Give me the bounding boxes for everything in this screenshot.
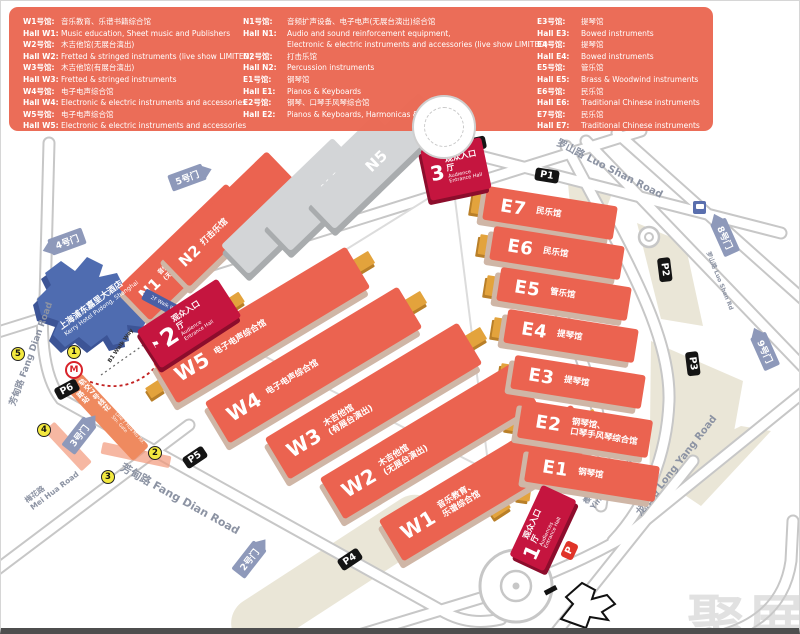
hall-name: 民乐馆 [535,206,562,220]
hall-name: 木吉他馆 (有展台演出) [322,394,376,437]
bus-icon [693,201,706,214]
legend-text: 提琴馆 [581,16,715,28]
legend-text: Traditional Chinese instruments [581,120,715,132]
legend-label: Hall E7: [537,120,581,132]
hall-id: E4 [504,315,558,344]
legend-text: 打击乐馆 [287,51,535,63]
hall-name: 提琴馆 [556,329,583,343]
legend-text: Bowed instruments [581,51,715,63]
stop-2[interactable]: 2 [148,446,162,460]
roundabout-north [412,95,476,159]
legend-label: W2号馆: [23,39,61,51]
legend-text: Fretted & stringed instruments [61,74,241,86]
stop-5[interactable]: 5 [11,347,25,361]
legend-text: 民乐馆 [581,86,715,98]
legend-label: W5号馆: [23,109,61,121]
hall-legend: W1号馆:音乐教育、乐谱书籍综合馆 Hall W1:Music educatio… [9,7,713,131]
legend-label: E2号馆: [243,97,287,109]
stop-4[interactable]: 4 [37,423,51,437]
legend-column-n: N1号馆:音频扩声设备、电子电声(无展台演出)综合馆 Hall N1:Audio… [243,16,535,120]
parking-p2[interactable]: P2 [657,257,673,282]
legend-label: Hall W5: [23,120,61,132]
legend-text: Pianos & Keyboards [287,86,535,98]
hall-name: 管乐馆 [549,287,576,301]
hall-id: E2 [518,408,572,437]
legend-text: 木吉他馆(无展台演出) [61,39,241,51]
legend-text: 木吉他馆(有展台演出) [61,62,241,74]
watermark: 聚展 [687,575,800,634]
legend-text: Fretted & stringed instruments (live sho… [61,51,252,63]
metro-icon[interactable]: M [65,361,83,379]
legend-label [243,39,287,51]
legend-label: Hall W3: [23,74,61,86]
legend-text: 音频扩声设备、电子电声(无展台演出)综合馆 [287,16,535,28]
legend-label: E7号馆: [537,109,581,121]
legend-label: Hall E1: [243,86,287,98]
hall-name: 钢琴馆 [577,467,604,481]
legend-label: W3号馆: [23,62,61,74]
hall-name: 钢琴馆、 口琴手风琴综合馆 [569,417,639,448]
legend-label: Hall E4: [537,51,581,63]
parking-p3[interactable]: P3 [685,351,701,376]
landmark-icon [544,583,615,628]
legend-label: Hall N2: [243,62,287,74]
hall-name: 木吉他馆 (无展台演出) [377,434,431,477]
legend-text: Audio and sound reinforcement equipment, [287,28,535,40]
legend-label: Hall W1: [23,28,61,40]
legend-label: W4号馆: [23,86,61,98]
legend-text: 管乐馆 [581,62,715,74]
hall-name: 提琴馆 [563,375,590,389]
hall-id: E5 [497,273,551,302]
legend-text: 音乐教育、乐谱书籍综合馆 [61,16,241,28]
stop-3[interactable]: 3 [101,470,115,484]
legend-label: Hall E5: [537,74,581,86]
legend-label: N2号馆: [243,51,287,63]
legend-text: Pianos & Keyboards, Harmonicas & Accordi… [287,109,535,121]
roundabout-mini [639,227,659,247]
legend-text: Brass & Woodwind instruments [581,74,715,86]
hall-id: E6 [490,232,544,261]
legend-text: 钢琴馆 [287,74,535,86]
legend-text: Traditional Chinese instruments [581,97,715,109]
legend-column-w: W1号馆:音乐教育、乐谱书籍综合馆 Hall W1:Music educatio… [23,16,241,132]
hall-id: E1 [525,453,579,482]
legend-label: Hall W2: [23,51,61,63]
legend-label: E4号馆: [537,39,581,51]
hall-name: 民乐馆 [542,246,569,260]
hall-id: E7 [483,192,537,221]
hall-id: E3 [511,361,565,390]
legend-label: Hall E6: [537,97,581,109]
legend-text: 电子电声综合馆 [61,109,241,121]
legend-label: E5号馆: [537,62,581,74]
legend-label: Hall W4: [23,97,61,109]
legend-text: Percussion instruments [287,62,535,74]
expo-venue-map: W1号馆:音乐教育、乐谱书籍综合馆 Hall W1:Music educatio… [0,0,800,634]
legend-text: Bowed instruments [581,28,715,40]
legend-label: E1号馆: [243,74,287,86]
stop-1[interactable]: 1 [67,345,81,359]
legend-text: 电子电声综合馆 [61,86,241,98]
legend-label: E3号馆: [537,16,581,28]
legend-label: N1号馆: [243,16,287,28]
legend-label: Hall E3: [537,28,581,40]
hall-name: 电子电声综合馆 [264,358,320,397]
flag-icon: ⚑ [150,338,162,351]
legend-label: W1号馆: [23,16,61,28]
legend-label: Hall E2: [243,109,287,121]
legend-text: Music education, Sheet music and Publish… [61,28,241,40]
legend-text: Electronic & electric instruments and ac… [287,39,548,51]
legend-column-e: E3号馆:提琴馆 Hall E3:Bowed instruments E4号馆:… [537,16,715,132]
legend-text: Electronic & electric instruments and ac… [61,120,246,132]
legend-text: 民乐馆 [581,109,715,121]
legend-text: 钢琴、口琴手风琴综合馆 [287,97,535,109]
legend-label: E6号馆: [537,86,581,98]
legend-text: Electronic & electric instruments and ac… [61,97,246,109]
legend-text: 提琴馆 [581,39,715,51]
hall-id: N5 [362,146,392,176]
legend-label: Hall N1: [243,28,287,40]
entrance-number: 3 [428,162,446,184]
hall-name: 音乐教育、 乐谱综合馆 [436,480,483,519]
